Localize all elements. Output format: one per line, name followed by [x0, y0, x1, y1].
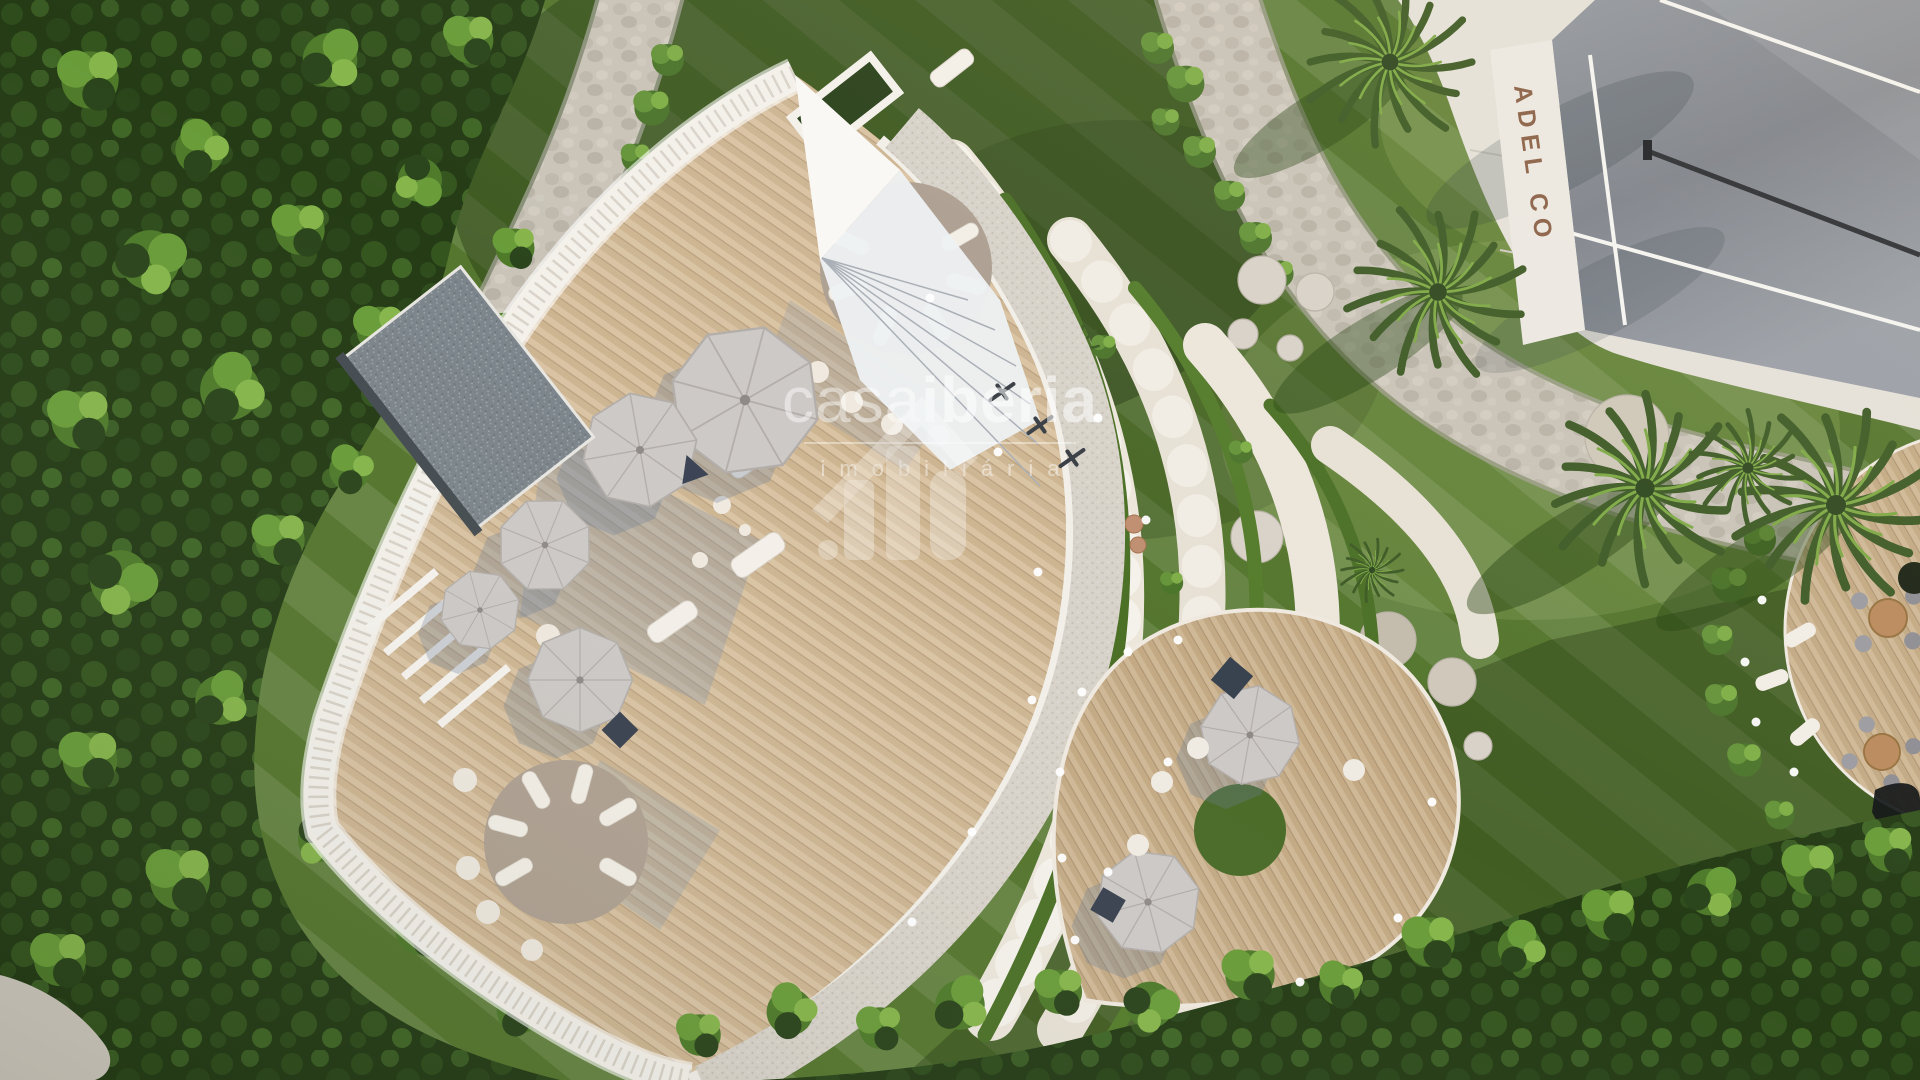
aerial-render-image: ADEL CO: [0, 0, 1920, 1080]
lighting-wash: [0, 0, 1920, 1080]
render-scene: ADEL CO: [0, 0, 1920, 1080]
